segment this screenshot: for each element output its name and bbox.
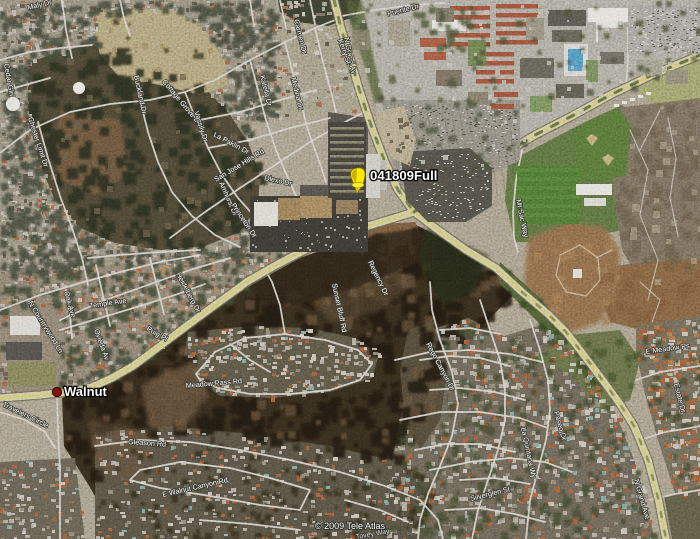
svg-text:041809Full: 041809Full: [370, 168, 437, 183]
svg-text:Walnut: Walnut: [64, 384, 108, 399]
svg-text:© 2009 Tele Atlas: © 2009 Tele Atlas: [315, 521, 386, 531]
